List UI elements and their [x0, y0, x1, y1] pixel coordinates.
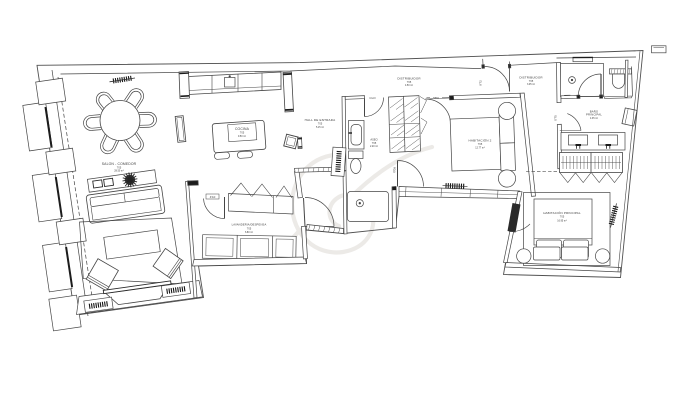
svg-text:6.80 m²: 6.80 m² [245, 231, 253, 234]
svg-text:12.77 m²: 12.77 m² [475, 146, 485, 149]
svg-text:9.50 m²: 9.50 m² [238, 135, 246, 138]
svg-text:16.95 m²: 16.95 m² [557, 220, 567, 223]
svg-text:4.50 m²: 4.50 m² [405, 84, 413, 87]
svg-text:3.05 m²: 3.05 m² [527, 83, 535, 86]
svg-text:HALL DE ENTRADA: HALL DE ENTRADA [305, 118, 336, 122]
svg-text:4'10: 4'10 [210, 195, 216, 199]
svg-text:0'09: 0'09 [392, 167, 396, 173]
svg-text:9'72: 9'72 [479, 80, 483, 86]
svg-text:4.35 m²: 4.35 m² [590, 117, 598, 120]
svg-text:0'75: 0'75 [554, 115, 558, 121]
svg-text:7'05: 7'05 [560, 216, 565, 219]
svg-text:HABITACIÓN 2: HABITACIÓN 2 [468, 138, 491, 143]
svg-text:CLO: CLO [369, 96, 376, 100]
svg-text:HABITACIÓN PRINCIPAL: HABITACIÓN PRINCIPAL [543, 210, 581, 215]
svg-text:LAVANDERIA/DESPENSA: LAVANDERIA/DESPENSA [232, 223, 267, 227]
svg-text:5.15 m²: 5.15 m² [316, 126, 324, 129]
svg-text:COCINA: COCINA [235, 127, 250, 131]
svg-text:2.20 m²: 2.20 m² [370, 145, 378, 148]
svg-text:58'0: 58'0 [433, 96, 439, 100]
svg-text:28.50 m²: 28.50 m² [114, 169, 124, 172]
